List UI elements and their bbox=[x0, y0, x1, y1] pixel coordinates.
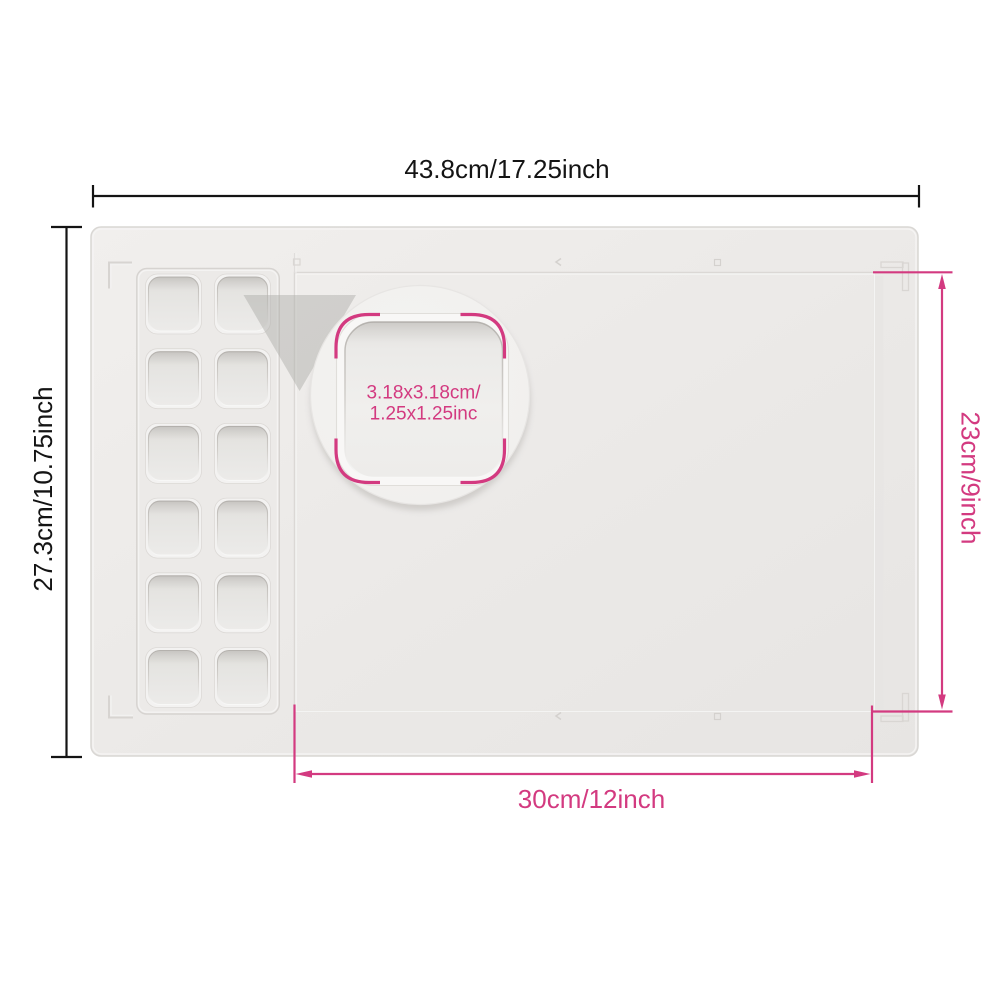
svg-text:23cm/9inch: 23cm/9inch bbox=[956, 412, 986, 545]
svg-text:43.8cm/17.25inch: 43.8cm/17.25inch bbox=[404, 154, 609, 184]
svg-text:27.3cm/10.75inch: 27.3cm/10.75inch bbox=[28, 386, 58, 591]
svg-text:1.25x1.25inc: 1.25x1.25inc bbox=[370, 403, 478, 424]
svg-text:3.18x3.18cm/: 3.18x3.18cm/ bbox=[366, 383, 481, 404]
svg-text:30cm/12inch: 30cm/12inch bbox=[518, 784, 665, 814]
